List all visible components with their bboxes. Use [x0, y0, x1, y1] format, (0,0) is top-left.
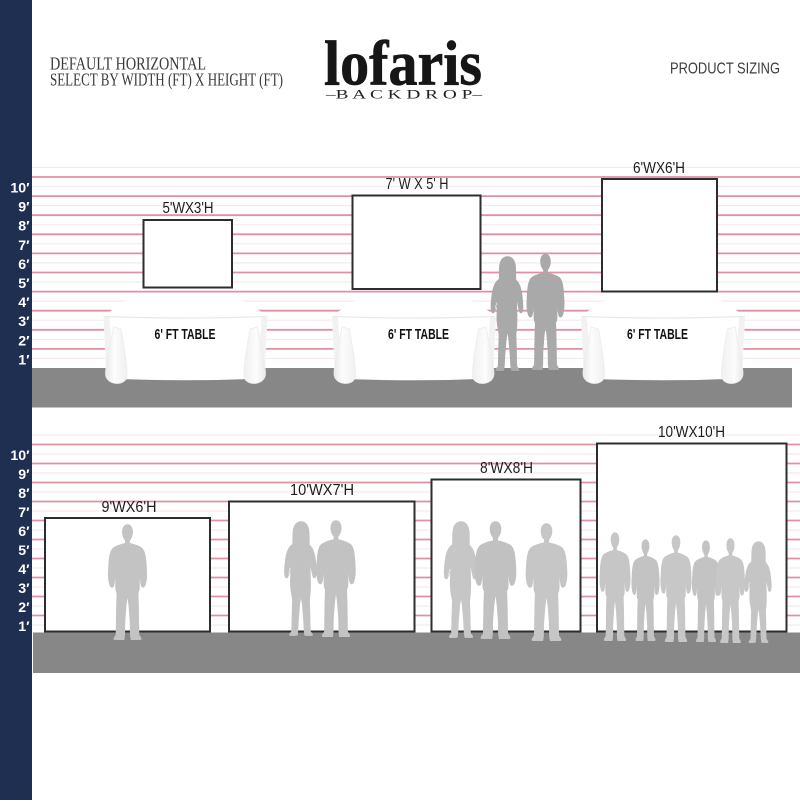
svg-text:5′: 5′: [18, 276, 30, 292]
svg-text:6' FT TABLE: 6' FT TABLE: [155, 327, 216, 343]
svg-text:7′: 7′: [18, 505, 30, 521]
svg-text:9'WX6'H: 9'WX6'H: [102, 499, 157, 516]
svg-text:10'WX7'H: 10'WX7'H: [290, 482, 354, 499]
svg-text:4′: 4′: [18, 295, 30, 311]
svg-text:8′: 8′: [18, 486, 30, 502]
svg-text:SELECT BY WIDTH (FT) X HEIGHT: SELECT BY WIDTH (FT) X HEIGHT (FT): [50, 70, 283, 91]
svg-text:3′: 3′: [18, 314, 30, 330]
svg-text:9′: 9′: [18, 467, 30, 483]
svg-text:PRODUCT SIZING: PRODUCT SIZING: [670, 61, 780, 78]
svg-text:4′: 4′: [18, 562, 30, 578]
svg-text:–B A C K D R O P–: –B A C K D R O P–: [324, 88, 483, 102]
svg-text:10′: 10′: [10, 448, 30, 464]
svg-text:2′: 2′: [18, 600, 30, 616]
svg-text:7′: 7′: [18, 238, 30, 254]
svg-text:3′: 3′: [18, 581, 30, 597]
svg-text:8'WX8'H: 8'WX8'H: [480, 460, 533, 477]
svg-text:5′: 5′: [18, 543, 30, 559]
svg-text:10′: 10′: [10, 181, 30, 197]
svg-text:6′: 6′: [18, 524, 30, 540]
svg-text:6′: 6′: [18, 257, 30, 273]
svg-text:10'WX10'H: 10'WX10'H: [658, 424, 725, 441]
svg-text:1′: 1′: [18, 352, 30, 368]
svg-text:9′: 9′: [18, 200, 30, 216]
svg-text:6' FT TABLE: 6' FT TABLE: [388, 327, 449, 343]
svg-text:5'WX3'H: 5'WX3'H: [163, 200, 214, 217]
svg-text:2′: 2′: [18, 333, 30, 349]
svg-text:6' FT TABLE: 6' FT TABLE: [627, 327, 688, 343]
svg-text:6'WX6'H: 6'WX6'H: [633, 160, 685, 177]
svg-text:8′: 8′: [18, 219, 30, 235]
svg-text:7' W X 5' H: 7' W X 5' H: [386, 176, 449, 193]
svg-text:1′: 1′: [18, 619, 30, 635]
